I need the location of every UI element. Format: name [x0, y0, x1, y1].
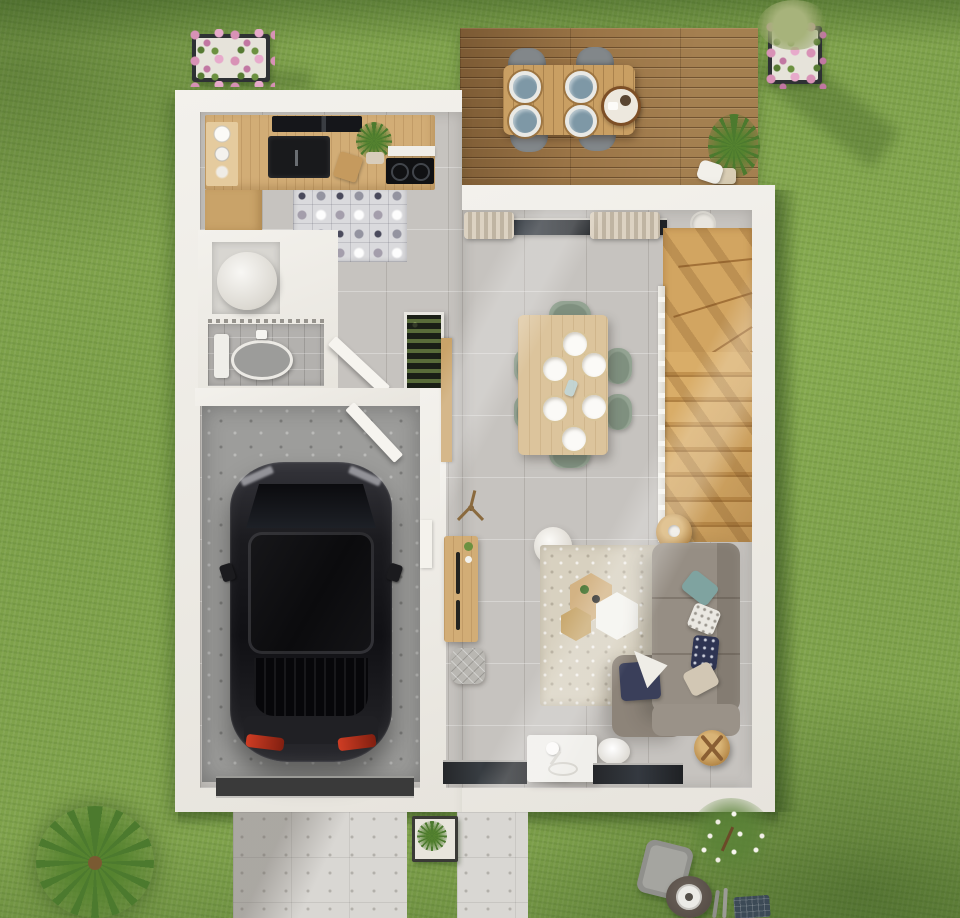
- dining-chair: [604, 348, 632, 384]
- sheepskin-stool: [598, 738, 630, 764]
- toilet-paper: [256, 330, 267, 339]
- white-blossoms: [696, 806, 766, 870]
- garage-door: [216, 776, 414, 798]
- cooktop: [386, 158, 434, 184]
- base-cabinet: [205, 190, 262, 235]
- tray-cup: [620, 95, 631, 106]
- table-cup: [592, 595, 600, 603]
- garage-top-wall: [195, 388, 445, 406]
- walkway-planter: [412, 816, 458, 862]
- car-roof: [248, 532, 374, 654]
- floor-window: [593, 763, 683, 784]
- white-desk: [527, 735, 597, 782]
- stool-leg: [469, 506, 484, 521]
- curtains-right: [590, 212, 660, 239]
- sideboard-handle: [456, 552, 460, 594]
- wc-door-threshold: [208, 319, 324, 323]
- bowl-center: [685, 893, 693, 901]
- toilet-cistern: [214, 334, 229, 378]
- place-setting: [541, 355, 569, 383]
- kitchen-plant-pot: [366, 152, 384, 164]
- stacked-dishes: [206, 122, 238, 186]
- driveway: [233, 812, 407, 918]
- planter-shrub: [417, 821, 447, 851]
- burner-ring: [391, 163, 409, 181]
- curtains-left: [464, 212, 514, 239]
- garden-bowl: [676, 884, 702, 910]
- quilted-pouf: [451, 648, 485, 684]
- place-setting: [580, 393, 608, 421]
- range-hood: [272, 116, 362, 132]
- flower-box-top-left: [192, 34, 270, 82]
- front-walkway: [457, 812, 528, 918]
- seed-tray: [733, 895, 770, 918]
- floor-plan-render: [0, 0, 960, 918]
- outdoor-place-setting: [565, 105, 597, 137]
- dining-table: [518, 315, 608, 455]
- wooden-deck: [460, 28, 758, 186]
- open-shelf: [388, 146, 435, 156]
- car: [230, 462, 392, 762]
- place-setting: [580, 351, 608, 379]
- house-shadow-right: [775, 190, 799, 812]
- sideboard-vase: [465, 556, 472, 563]
- place-setting: [560, 425, 588, 453]
- table-plant: [580, 585, 589, 594]
- palm-center: [88, 856, 102, 870]
- outdoor-place-setting: [509, 71, 541, 103]
- burner-ring: [412, 163, 430, 181]
- serving-tray: [601, 86, 641, 126]
- driveway-shadow: [233, 812, 407, 918]
- flowering-shrub: [688, 798, 774, 878]
- car-windshield: [246, 484, 376, 528]
- kitchen-sink: [268, 136, 330, 178]
- toilet-bowl: [231, 340, 293, 380]
- candle: [668, 525, 680, 537]
- floor-window: [443, 760, 527, 784]
- outdoor-place-setting: [509, 105, 541, 137]
- botanical-display-cabinet: [404, 312, 444, 396]
- shrub-top-right: [758, 0, 830, 50]
- desk-lamp-base: [548, 762, 578, 776]
- tray-napkin: [608, 102, 618, 110]
- car-rear-window: [254, 658, 368, 716]
- faucet: [295, 150, 298, 166]
- pink-flowers: [187, 29, 275, 87]
- sofa-armrest: [652, 704, 740, 736]
- palm-bush: [36, 806, 154, 918]
- tripod-stool: [452, 490, 488, 526]
- water-heater: [217, 252, 277, 310]
- wood-wall-panel: [441, 338, 452, 462]
- outdoor-place-setting: [565, 71, 597, 103]
- sideboard-plant: [464, 542, 473, 551]
- door-recess: [420, 520, 432, 568]
- dining-chair: [604, 394, 632, 430]
- place-setting: [541, 395, 569, 423]
- sideboard-handle: [456, 600, 460, 630]
- sideboard: [444, 536, 478, 642]
- stair-balustrade: [658, 286, 665, 542]
- table-centerpiece: [564, 379, 579, 397]
- round-tray-table: [694, 730, 730, 766]
